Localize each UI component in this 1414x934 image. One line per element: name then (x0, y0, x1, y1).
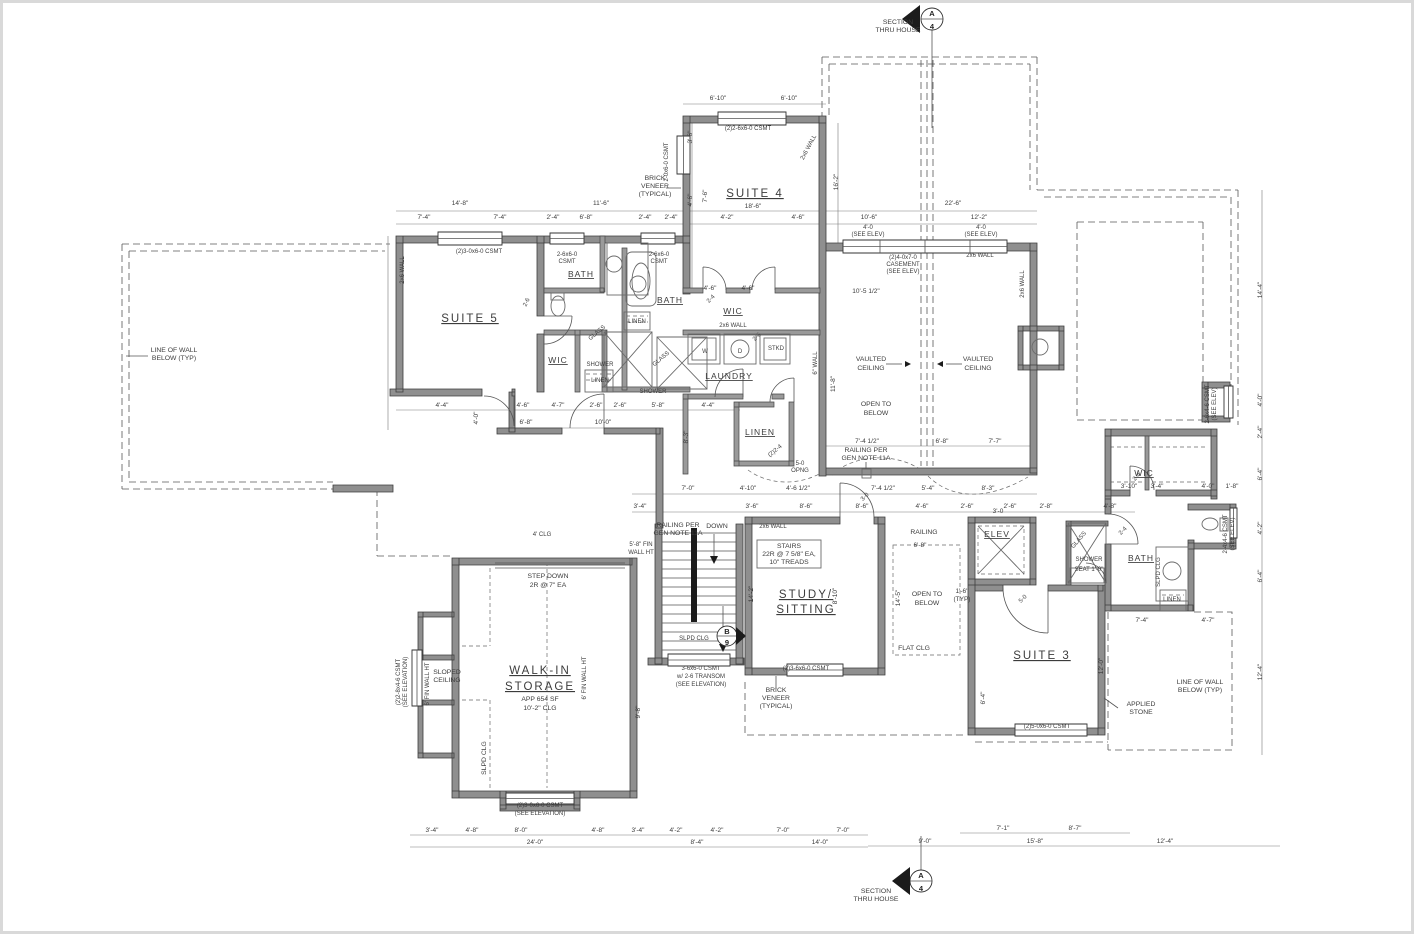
tiny-label: SHOWER (587, 362, 615, 368)
vaulted-arrow-right (905, 361, 911, 367)
tiny-label: LINEN (628, 319, 646, 325)
ann-label: RAILING PER (656, 522, 699, 529)
section-letter: A (918, 871, 924, 880)
dim-label: 16'-2" (833, 173, 840, 190)
tiny-label: STKD (768, 346, 785, 352)
tiny-label: D (738, 349, 743, 355)
dim-label: 18'-6" (745, 203, 762, 210)
tiny-label: W (702, 349, 708, 355)
dim-label: 8'-0" (515, 827, 529, 834)
dim-label: 6'-10" (710, 95, 727, 102)
dim-label: 8'-3" (683, 430, 690, 444)
shower-glass-x (657, 337, 707, 389)
tiny-label: 5-0 (1018, 594, 1029, 605)
tiny-label: (SEE ELEV) (1230, 517, 1236, 550)
tiny-label: (SEE ELEV) (1212, 387, 1218, 420)
dim-label: 7'-0" (777, 827, 791, 834)
tiny-label: SEAT 1'-0" (1075, 567, 1104, 573)
room-label-wic-1: WIC (548, 355, 568, 365)
tiny-label: (SEE ELEVATION) (515, 811, 565, 817)
toilet (551, 296, 565, 316)
section-arrow (892, 867, 910, 895)
dim-label: 4'-7" (552, 402, 566, 409)
dim-label: 8'-10" (832, 587, 839, 604)
dim-label: 4'-6" (792, 214, 806, 221)
dim-label: 14'-2" (748, 585, 755, 602)
ann-label: (TYPICAL) (760, 703, 793, 710)
dim-label: 4'-0" (1202, 483, 1216, 490)
dim-label: 10'-6" (861, 214, 878, 221)
tiny-label: (SEE ELEVATION) (676, 682, 726, 688)
sub-label: 10'-2" CLG (523, 705, 556, 712)
ann-label: RAILING (910, 529, 937, 536)
tiny-label: (2)3-0x6-0 CSMT (517, 803, 564, 809)
tiny-label: (2)4-0x7-0 (889, 255, 917, 261)
dim-label: 3'-6" (687, 130, 694, 144)
floor-plan-sheet: A 4 A 4 B 9 SUITE 5SUITE 4SUITE 3BATHBAT… (0, 0, 1414, 934)
tiny-label: 2x6 WALL (759, 524, 787, 530)
dim-label: 7'-0" (682, 485, 696, 492)
ann-label: RAILING PER (844, 447, 887, 454)
sheet-edges (0, 0, 1414, 934)
dim-label: 4'-0" (473, 411, 480, 425)
dim-label: 2'-6" (590, 402, 604, 409)
dim-label: 8'-7" (1069, 825, 1083, 832)
section-note-bottom: SECTION (861, 888, 891, 895)
tiny-label: 4' CLG (533, 532, 552, 538)
sub-label: APP 654 SF (521, 696, 558, 703)
dim-label: 4'-2" (721, 214, 735, 221)
dim-label: 8'-6" (856, 503, 870, 510)
tiny-label: 3-6x6-0 CSMT (681, 666, 720, 672)
dim-label: 2'-6" (961, 503, 975, 510)
ann-label: STAIRS (777, 543, 802, 550)
dim-label: 1'-8" (1226, 483, 1240, 490)
ann-label: BRICK (645, 175, 666, 182)
ann-label: THRU HOUSE (854, 896, 899, 903)
dim-label: 4'-2" (1257, 521, 1264, 535)
tiny-label: 2-6x4-6 CSMT (1205, 384, 1211, 423)
dim-label: 8'-6" (800, 503, 814, 510)
tiny-label: CASEMENT (886, 262, 920, 268)
dim-label: 4'-8" (466, 827, 480, 834)
dim-label: 4'-6" (742, 285, 756, 292)
dim-label: 14'-8" (452, 200, 469, 207)
dim-label: (TYP) (954, 596, 971, 603)
dim-label: 3'-4" (426, 827, 440, 834)
tiny-label: 2x6 WALL (719, 323, 747, 329)
dim-label: 4'-6" (916, 503, 930, 510)
room-label-wic-2: WIC (723, 306, 743, 316)
dim-label: 4'-10" (740, 485, 757, 492)
dim-label: 7'-4" (418, 214, 432, 221)
section-letter: B (724, 627, 730, 636)
toilet (1202, 518, 1218, 530)
dim-label: 6'-4" (1257, 467, 1264, 481)
dim-label: 3'-4" (1151, 483, 1165, 490)
ann-label: VAULTED (963, 356, 993, 363)
dim-label: 14'-0" (812, 839, 829, 846)
dim-label: 5'-8" (652, 402, 666, 409)
tiny-label: 2-6x6-0 (649, 252, 670, 258)
tiny-label: 3-0 (860, 492, 871, 503)
ann-label: 10" TREADS (769, 559, 809, 566)
ann-label: BELOW (864, 410, 889, 417)
tiny-label: CSMT (559, 259, 576, 265)
room-label: SITTING (776, 604, 835, 616)
ann-label: OPEN TO (861, 401, 891, 408)
ann-label: CEILING (433, 677, 460, 684)
dim-label: 7'-4 1/2" (871, 485, 895, 492)
tiny-label: LINEN (591, 378, 609, 384)
tiny-label: 2-6 (523, 297, 532, 308)
tiny-label: (2)5-0x6-0 CSMT (1024, 724, 1071, 730)
dim-label: 7'-1" (997, 825, 1011, 832)
tiny-label: (2)2-6x6-0 CSMT (725, 126, 772, 132)
vaulted-arrow-left (937, 361, 943, 367)
dim-label: 9'-0" (919, 838, 933, 845)
tiny-label: (2)3-0x6-0 CSMT (456, 249, 503, 255)
tiny-label: 2-4 (1118, 526, 1129, 537)
sink-basin (1163, 562, 1181, 580)
dim-label: 3'-0 (993, 508, 1004, 515)
dim-label: 4'-8" (1104, 503, 1118, 510)
section-letter: A (929, 9, 935, 18)
tiny-label: (SEE ELEV) (886, 269, 919, 275)
tiny-label: (2)3-6x6-0 CSMT (783, 666, 830, 672)
dim-label: 8'-3" (982, 485, 996, 492)
tiny-label: 2x6 WALL (800, 133, 818, 161)
tiny-label: GLASS (652, 351, 671, 368)
tiny-label: 5'-8" FIN (629, 542, 652, 548)
tiny-label: 4'-0 (976, 225, 986, 231)
dim-label: 6'-4" (980, 691, 987, 705)
label-layer: SUITE 5SUITE 4SUITE 3BATHBATHBATHWICWICW… (151, 19, 1264, 903)
room-label-suite-5: SUITE 5 (441, 313, 498, 325)
floor-plan-drawing: A 4 A 4 B 9 SUITE 5SUITE 4SUITE 3BATHBAT… (0, 0, 1414, 934)
room-label-walkin-storage: WALK-IN (509, 665, 571, 677)
room-label-suite-3: SUITE 3 (1013, 650, 1070, 662)
dim-label: 2'-6" (614, 402, 628, 409)
tiny-label: OPNG (791, 468, 809, 474)
ann-label: FLAT CLG (898, 645, 930, 652)
tiny-label: 2-0x6-0 CSMT (664, 142, 670, 181)
dim-label: 6'-8" (914, 542, 928, 549)
dim-label: 3'-4" (634, 503, 648, 510)
dim-label: 12'-4" (1157, 838, 1174, 845)
dim-label: 12'-4" (1257, 663, 1264, 680)
ann-label: SLOPED (433, 669, 461, 676)
tiny-label: 2x6 WALL (1020, 270, 1026, 298)
dim-label: 7'-7" (989, 438, 1003, 445)
dim-label: 4'-4" (436, 402, 450, 409)
ann-label: CEILING (857, 365, 884, 372)
tiny-label: 2x6 WALL (400, 256, 406, 284)
fixture-layer (126, 188, 1228, 708)
room-label-study: STUDY/ (779, 589, 833, 601)
dim-label: 2'-4" (639, 214, 653, 221)
dim-label: 2'-4" (547, 214, 561, 221)
tiny-label: SHOWER (1076, 557, 1104, 563)
tiny-label: 2-4 (706, 294, 717, 305)
dim-label: 3'-4" (632, 827, 646, 834)
dim-label: 2'-6" (1004, 503, 1018, 510)
room-label-bath-3: BATH (1128, 553, 1154, 563)
shower-glass-x (1068, 523, 1106, 583)
dim-label: 24'-0" (527, 839, 544, 846)
room-label-bath-1: BATH (568, 269, 594, 279)
dim-label: 2'-4" (665, 214, 679, 221)
dim-label: 4'-2" (670, 827, 684, 834)
section-note-top: SECTION (883, 19, 913, 26)
tiny-label: (SEE ELEV) (964, 232, 997, 238)
tiny-label: SLPD CLG (679, 636, 709, 642)
dim-label: 6'-8" (580, 214, 594, 221)
ann-label: BELOW (TYP) (1178, 687, 1222, 694)
tiny-label: (2)2-8x4-6 CSMT (396, 658, 402, 705)
ann-label: GEN NOTE 11A (654, 530, 703, 537)
tiny-label: 6" WALL (813, 351, 819, 375)
dim-label: 7'-0" (837, 827, 851, 834)
dim-label: 22'-6" (945, 200, 962, 207)
ann-label: VAULTED (856, 356, 886, 363)
tiny-label: SHOWER (640, 389, 668, 395)
ann-label: VENEER (762, 695, 790, 702)
section-sheet: 9 (725, 638, 729, 647)
dim-label: 8'-4" (691, 839, 705, 846)
sink-basin (606, 256, 622, 272)
shower-glass-x (604, 332, 652, 387)
ann-label: 22R @ 7 5/8" EA, (762, 551, 816, 558)
dim-label: 10'-5 1/2" (852, 288, 880, 295)
dim-label: 4'-8" (592, 827, 606, 834)
dim-label: 3'-6" (746, 503, 760, 510)
dim-label: 2'-8" (1040, 503, 1054, 510)
ann-label: CEILING (964, 365, 991, 372)
dim-label: 4'-2" (711, 827, 725, 834)
ann-label: LINE OF WALL (1177, 679, 1224, 686)
stair-handrail (691, 528, 697, 622)
ann-label: GEN NOTE 11A (842, 455, 891, 462)
ann-label: BELOW (915, 600, 940, 607)
tiny-label: 2x6 WALL (966, 253, 994, 259)
dim-label: 11'-8" (830, 375, 837, 392)
tiny-label: (SEE ELEVATION) (403, 657, 409, 707)
dim-label: 2'-4" (1257, 425, 1264, 439)
tiny-label: 2-6x6-0 (557, 252, 578, 258)
tiny-label: 5-0 (796, 461, 805, 467)
dim-label: 4'-6" (517, 402, 531, 409)
tiny-label: GLASS (1071, 531, 1088, 550)
room-label-bath-2: BATH (657, 295, 683, 305)
dim-label: 4'-7" (1202, 617, 1216, 624)
dim-label: 12'-2" (971, 214, 988, 221)
room-label: STORAGE (505, 681, 575, 693)
dim-label: 6'-4" (1257, 569, 1264, 583)
tiny-label: 6' FIN WALL HT (582, 656, 588, 699)
dim-label: 14'-4" (1257, 281, 1264, 298)
ann-label: VENEER (641, 183, 669, 190)
tiny-label: WALL HT (628, 550, 654, 556)
dim-label: 6'-8" (936, 438, 950, 445)
dim-label: 7'-4" (1136, 617, 1150, 624)
ann-label: (TYPICAL) (639, 191, 672, 198)
tiny-label: (SEE ELEV) (851, 232, 884, 238)
dim-label: 4'-4" (702, 402, 716, 409)
vanity-counter (607, 243, 648, 295)
dim-label: 7'-4 1/2" (855, 438, 879, 445)
tiny-label: 4'-0 (863, 225, 873, 231)
tiny-label: 6' FIN WALL HT (425, 662, 431, 705)
dim-label: 5'-4" (922, 485, 936, 492)
dim-label: 9'-8" (635, 705, 642, 719)
tiny-label: w/ 2-6 TRANSOM (676, 674, 725, 680)
room-label-laundry: LAUNDRY (705, 371, 752, 381)
dim-label: 6'-8" (520, 419, 534, 426)
dim-label: 15'-8" (1027, 838, 1044, 845)
ann-label: BELOW (TYP) (152, 355, 196, 362)
tiny-label: (2)2-4 (767, 443, 784, 458)
dim-label: 7'-6" (702, 189, 709, 203)
ann-label: BRICK (766, 687, 787, 694)
dim-label: 12'-0" (1098, 657, 1105, 674)
dim-label: 7'-4" (494, 214, 508, 221)
tiny-label: SLPD CLG (1156, 557, 1162, 587)
ann-label: SLPD CLG (481, 741, 488, 775)
dim-label: 4'-6" (704, 285, 718, 292)
ann-label: 2R @ 7" EA (530, 582, 567, 589)
room-label-suite-4: SUITE 4 (726, 188, 783, 200)
ann-label: APPLIED (1127, 701, 1156, 708)
dim-label: 4'-6 1/2" (786, 485, 810, 492)
dim-label: 11'-6" (593, 200, 610, 207)
dim-label: 14'-5" (895, 589, 902, 606)
ann-label: STONE (1129, 709, 1153, 716)
room-label-elev: ELEV (984, 529, 1010, 539)
ann-label: LINE OF WALL (151, 347, 198, 354)
tiny-label: LINEN (1163, 597, 1181, 603)
dim-label: 6'-10" (781, 95, 798, 102)
room-label-linen-main: LINEN (745, 427, 775, 437)
dim-label: 3'-10" (1121, 483, 1138, 490)
ann-label: OPEN TO (912, 591, 942, 598)
ann-label: THRU HOUSE (876, 27, 921, 34)
tiny-label: CSMT (651, 259, 668, 265)
dim-label: 10'-0" (595, 419, 612, 426)
ann-label: STEP DOWN (527, 573, 568, 580)
tiny-label: 2-4x4-6 CSMT (1223, 514, 1229, 553)
dim-label: 4'-6" (687, 193, 694, 207)
ann-label: DOWN (706, 523, 728, 530)
dim-label: 4'-0" (1257, 393, 1264, 407)
dim-label: 1'-6" (956, 588, 970, 595)
